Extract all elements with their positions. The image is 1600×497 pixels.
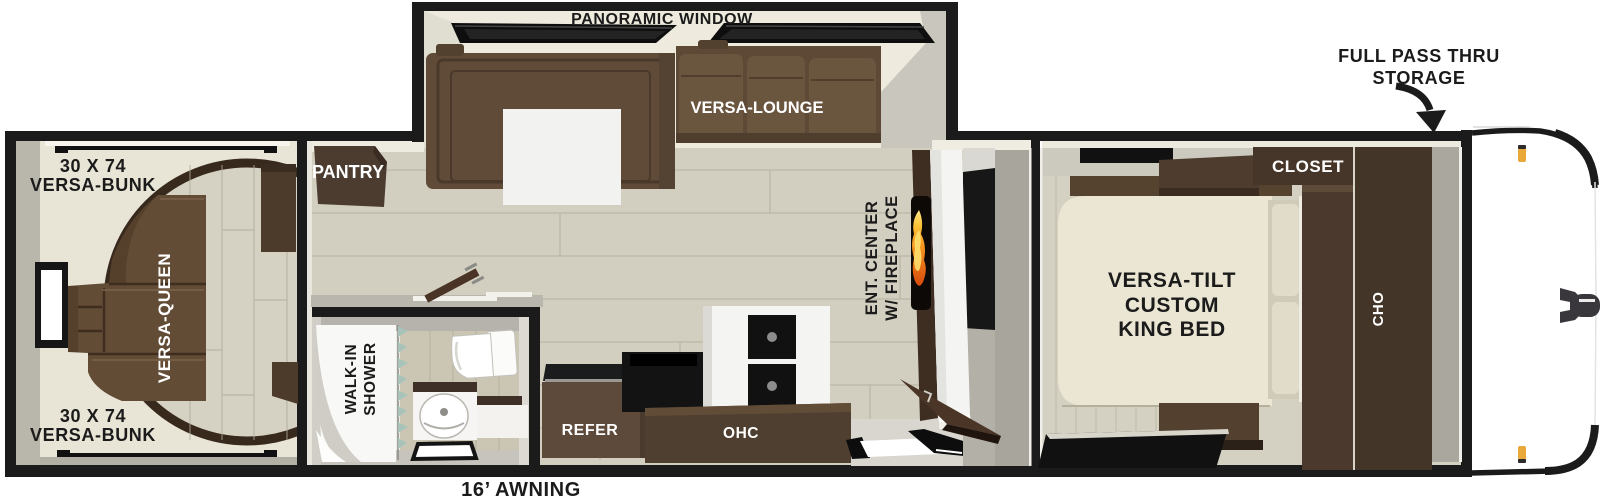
- svg-text:30 X 74: 30 X 74: [60, 156, 126, 176]
- svg-text:KING BED: KING BED: [1118, 318, 1225, 341]
- svg-text:PANTRY: PANTRY: [312, 162, 384, 182]
- svg-text:VERSA-BUNK: VERSA-BUNK: [30, 425, 156, 445]
- svg-text:VERSA-QUEEN: VERSA-QUEEN: [155, 253, 174, 383]
- svg-text:STORAGE: STORAGE: [1373, 68, 1466, 88]
- svg-text:W/ FIREPLACE: W/ FIREPLACE: [883, 195, 901, 320]
- svg-text:30 X 74: 30 X 74: [60, 406, 126, 426]
- svg-text:WALK-IN: WALK-IN: [343, 344, 360, 415]
- svg-text:OHC: OHC: [723, 425, 759, 442]
- svg-text:SHOWER: SHOWER: [362, 342, 379, 415]
- svg-text:CUSTOM: CUSTOM: [1125, 294, 1219, 317]
- svg-text:REFER: REFER: [562, 422, 619, 439]
- svg-text:16’ AWNING: 16’ AWNING: [461, 479, 581, 497]
- svg-text:CHO: CHO: [1370, 292, 1387, 327]
- svg-text:VERSA-LOUNGE: VERSA-LOUNGE: [691, 99, 824, 117]
- svg-text:VERSA-TILT: VERSA-TILT: [1108, 269, 1236, 292]
- svg-text:PANORAMIC WINDOW: PANORAMIC WINDOW: [571, 11, 753, 28]
- svg-text:CLOSET: CLOSET: [1272, 157, 1344, 176]
- svg-text:VERSA-BUNK: VERSA-BUNK: [30, 175, 156, 195]
- svg-text:FULL PASS THRU: FULL PASS THRU: [1338, 46, 1500, 66]
- svg-text:ENT. CENTER: ENT. CENTER: [863, 201, 881, 316]
